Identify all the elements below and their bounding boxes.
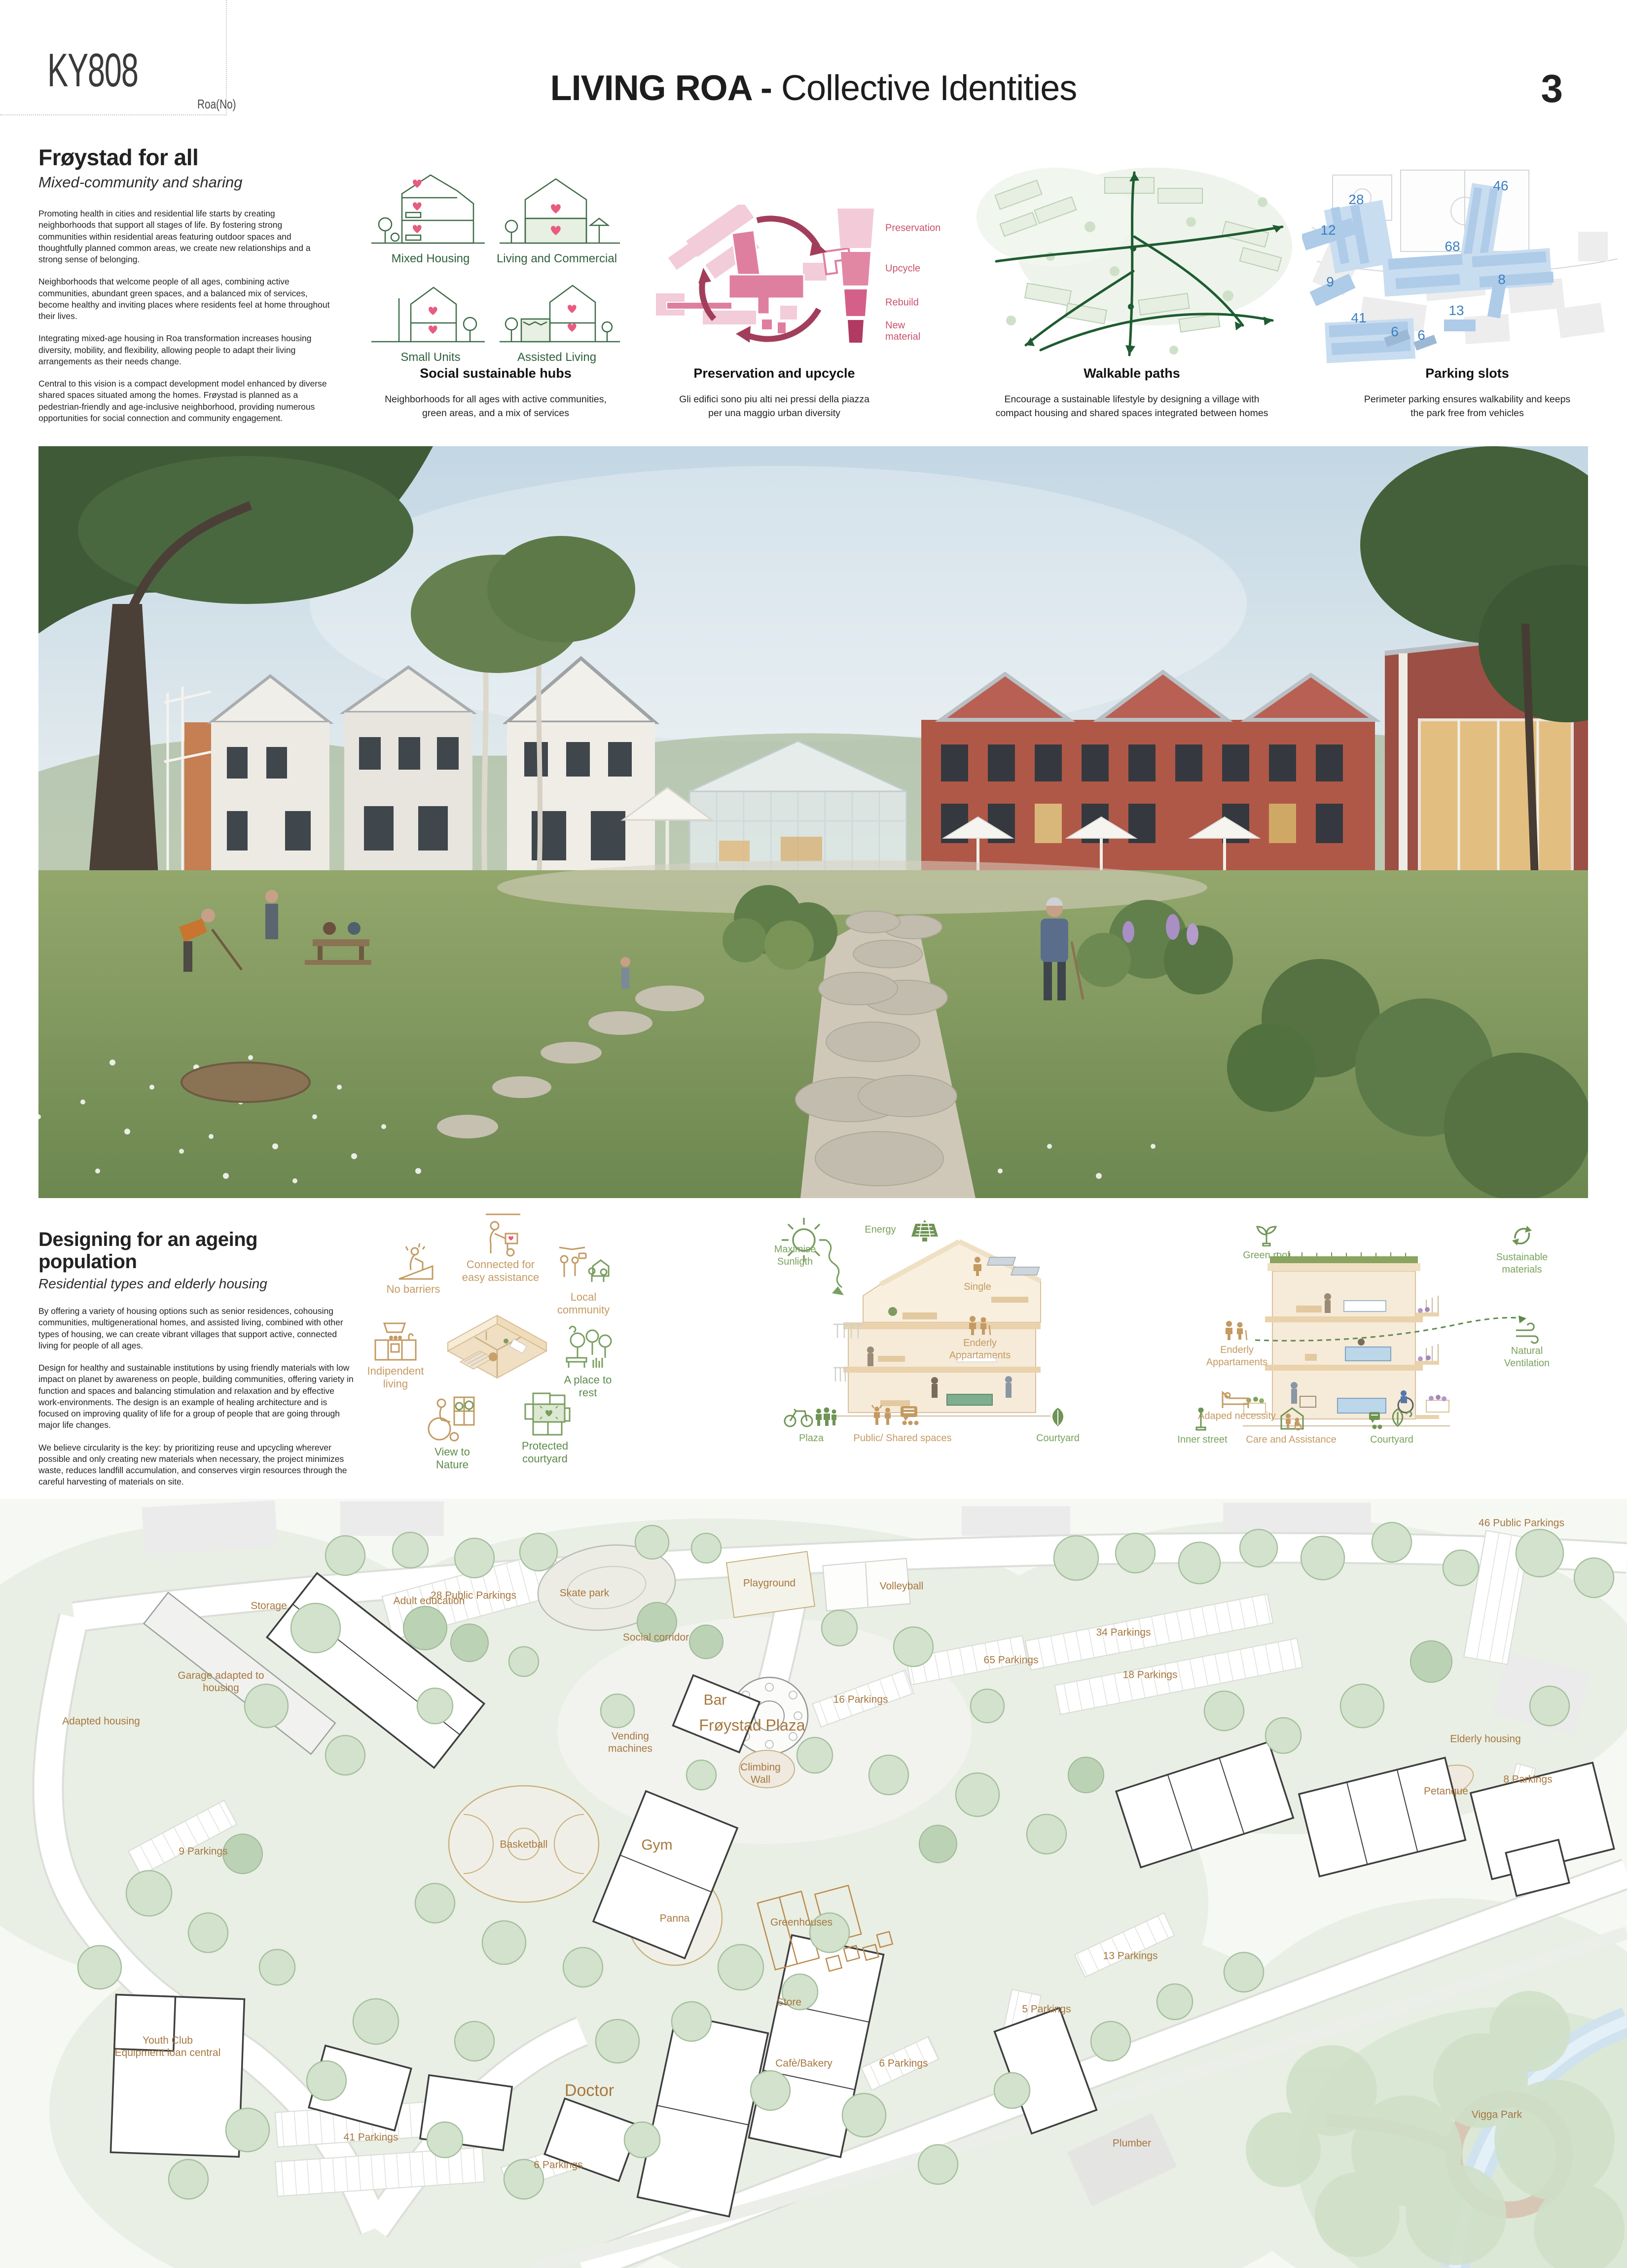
plan-label: Doctor bbox=[565, 2081, 614, 2100]
ageing-section: Designing for an ageing population Resid… bbox=[38, 1229, 354, 1499]
plan-label: 6 Parkings bbox=[879, 2058, 928, 2070]
material-funnel bbox=[837, 209, 874, 343]
intro-subtitle: Mixed-community and sharing bbox=[38, 174, 330, 191]
plan-label: Panna bbox=[660, 1913, 690, 1925]
section-diagram-two: Green roof Sustainable materials Enderly… bbox=[1149, 1198, 1608, 1499]
community-icon bbox=[557, 1246, 612, 1291]
legend-new-material: New material bbox=[885, 320, 932, 343]
housing-type-label: Mixed Housing bbox=[392, 252, 470, 266]
plan-label: Youth Club Equipment loan central bbox=[115, 2035, 221, 2059]
leaf-icon bbox=[1046, 1405, 1070, 1429]
sun-ray-arrow bbox=[821, 1235, 890, 1299]
solar-panel-icon bbox=[907, 1219, 942, 1243]
mixed-housing-icon bbox=[371, 175, 485, 243]
legend-upcycle: Upcycle bbox=[885, 263, 920, 275]
parking-count: 6 bbox=[1391, 324, 1399, 340]
inner-street-label: Inner street bbox=[1177, 1434, 1227, 1446]
walkable-caption: Encourage a sustainable lifestyle by des… bbox=[959, 392, 1304, 421]
quality-label: A place to rest bbox=[564, 1374, 612, 1400]
courtyard-label: Courtyard bbox=[1370, 1434, 1413, 1446]
plan-label: Plumber bbox=[1113, 2138, 1151, 2150]
plan-label: Adapted housing bbox=[62, 1716, 140, 1728]
sunlight-label: Maximise Sunligth bbox=[774, 1243, 816, 1268]
preservation-caption: Gli edifici sono piu alti nei pressi del… bbox=[626, 392, 922, 421]
plan-label: Basketball bbox=[500, 1839, 548, 1851]
shared-spaces-label: Public/ Shared spaces bbox=[853, 1432, 951, 1445]
plan-label: Frøystad Plaza bbox=[699, 1716, 805, 1735]
wheelchair-window-icon bbox=[427, 1394, 476, 1444]
plan-label: Bar bbox=[704, 1691, 727, 1708]
nurse-icon bbox=[480, 1219, 524, 1258]
rest-garden-icon bbox=[564, 1325, 613, 1372]
housing-type-label: Small Units bbox=[400, 351, 460, 364]
hubs-caption: Neighborhoods for all ages with active c… bbox=[348, 392, 644, 421]
plan-label: 5 Parkings bbox=[1022, 2004, 1071, 2016]
parking-caption-title: Parking slots bbox=[1319, 366, 1615, 381]
recycle-icon bbox=[1508, 1222, 1536, 1249]
ventilation-label: Natural Ventilation bbox=[1504, 1345, 1550, 1370]
elderly-apartments-label: Enderly Appartaments bbox=[949, 1337, 1011, 1362]
plan-label: 65 Parkings bbox=[984, 1655, 1039, 1667]
single-person-icon bbox=[971, 1256, 984, 1277]
hubs-caption-title: Social sustainable hubs bbox=[367, 366, 624, 381]
page-title: LIVING ROA - Collective Identities bbox=[0, 68, 1627, 108]
plan-label: 13 Parkings bbox=[1103, 1950, 1158, 1963]
kitchen-icon bbox=[373, 1321, 418, 1363]
parking-caption: Perimeter parking ensures walkability an… bbox=[1304, 392, 1627, 421]
parking-count: 13 bbox=[1448, 303, 1464, 319]
preservation-diagram: Preservation Upcycle Rebuild New materia… bbox=[656, 205, 932, 353]
parking-count: 12 bbox=[1320, 222, 1336, 238]
courtyard-label: Courtyard bbox=[1036, 1432, 1080, 1445]
site-plan: 28 Public Parkings46 Public ParkingsStor… bbox=[0, 1499, 1627, 2268]
plan-label: Cafè/Bakery bbox=[775, 2058, 832, 2070]
child-figure bbox=[620, 957, 630, 989]
courtyard-render bbox=[38, 446, 1588, 1198]
care-icon bbox=[1278, 1405, 1306, 1431]
parking-count: 28 bbox=[1348, 192, 1364, 208]
plan-label: Greenhouses bbox=[770, 1917, 832, 1929]
plan-label: Petanque bbox=[1424, 1786, 1468, 1798]
parking-slots-diagram: 2812941466881366 bbox=[1302, 158, 1627, 370]
elderly-couple-icon bbox=[966, 1315, 993, 1336]
elderly-couple-icon bbox=[1222, 1320, 1250, 1341]
small-units-icon bbox=[371, 287, 485, 342]
intro-section: Frøystad for all Mixed-community and sha… bbox=[38, 144, 330, 435]
orange-wall bbox=[184, 722, 211, 885]
assisted-living-icon bbox=[500, 285, 620, 342]
energy-label: Energy bbox=[865, 1224, 896, 1236]
plan-label: 46 Public Parkings bbox=[1479, 1518, 1564, 1530]
section-diagram-one: Maximise Sunligth Energy Single Enderly … bbox=[764, 1198, 1139, 1494]
legend-preservation: Preservation bbox=[885, 223, 940, 234]
care-label: Care and Assistance bbox=[1246, 1434, 1336, 1446]
apartment-axon bbox=[433, 1277, 561, 1390]
plan-label: Store bbox=[777, 1997, 801, 2009]
quality-label: No barriers bbox=[387, 1283, 440, 1296]
parking-count: 41 bbox=[1351, 310, 1366, 326]
wind-icon bbox=[1514, 1322, 1540, 1344]
quality-label: Local community bbox=[557, 1291, 610, 1317]
plaza-label: Plaza bbox=[799, 1432, 824, 1445]
log bbox=[181, 1063, 310, 1102]
plan-label: Playground bbox=[743, 1578, 795, 1590]
courtyard-plan-icon bbox=[521, 1391, 571, 1438]
ageing-subtitle: Residential types and elderly housing bbox=[38, 1276, 354, 1292]
intro-paragraph: Integrating mixed-age housing in Roa tra… bbox=[38, 333, 330, 367]
parking-count: 9 bbox=[1326, 274, 1334, 290]
site-plan-map bbox=[0, 1499, 1627, 2268]
legend-rebuild: Rebuild bbox=[885, 297, 919, 309]
plan-label: 9 Parkings bbox=[179, 1846, 227, 1858]
adapted-bed-icon bbox=[1221, 1389, 1250, 1409]
plan-label: Adult education bbox=[394, 1595, 465, 1608]
page-number: 3 bbox=[1541, 66, 1563, 111]
plan-label: 41 Parkings bbox=[344, 2132, 398, 2144]
housing-type-label: Living and Commercial bbox=[497, 252, 617, 266]
intro-paragraph: Central to this vision is a compact deve… bbox=[38, 378, 330, 424]
shared-spaces-icons bbox=[868, 1404, 932, 1429]
ageing-paragraph: Design for healthy and sustainable insti… bbox=[38, 1362, 354, 1431]
housing-types-diagram: Mixed Housing Living and Commercial Smal… bbox=[367, 165, 624, 362]
green-roof-label: Green roof bbox=[1243, 1249, 1290, 1262]
intro-paragraph: Promoting health in cities and residenti… bbox=[38, 208, 330, 265]
plan-label: 6 Parkings bbox=[534, 2160, 582, 2172]
ramp-icon bbox=[396, 1242, 435, 1282]
quality-label: Connected for easy assistance bbox=[462, 1258, 540, 1284]
parking-count: 8 bbox=[1498, 272, 1506, 287]
ageing-paragraph: By offering a variety of housing options… bbox=[38, 1306, 354, 1351]
adapted-label: Adaped necessity bbox=[1198, 1410, 1276, 1422]
intro-heading: Frøystad for all bbox=[38, 144, 330, 171]
qualities-diagram: No barriers Connected for easy assistanc… bbox=[367, 1208, 723, 1494]
walkable-caption-title: Walkable paths bbox=[984, 366, 1280, 381]
plan-label: Elderly housing bbox=[1450, 1734, 1521, 1746]
walkable-paths-diagram bbox=[967, 158, 1302, 365]
single-label: Single bbox=[964, 1281, 991, 1293]
ageing-paragraph: We believe circularity is the key: by pr… bbox=[38, 1442, 354, 1488]
page-title-bold: LIVING ROA - bbox=[550, 69, 772, 108]
red-building bbox=[921, 672, 1375, 880]
divider-line bbox=[486, 1212, 520, 1217]
standing-figure bbox=[265, 890, 278, 939]
page-title-regular: Collective Identities bbox=[772, 69, 1077, 108]
preservation-caption-title: Preservation and upcycle bbox=[626, 366, 922, 381]
housing-type-label: Assisted Living bbox=[517, 351, 596, 364]
parking-count: 46 bbox=[1493, 178, 1508, 194]
ageing-heading: Designing for an ageing population bbox=[38, 1229, 354, 1273]
materials-label: Sustainable materials bbox=[1496, 1251, 1548, 1276]
plan-label: 16 Parkings bbox=[833, 1694, 888, 1706]
parking-count: 6 bbox=[1417, 327, 1425, 343]
plan-label: Climbing Wall bbox=[740, 1762, 781, 1786]
intro-paragraph: Neighborhoods that welcome people of all… bbox=[38, 276, 330, 322]
plan-label: 34 Parkings bbox=[1096, 1627, 1151, 1639]
plaza-icons bbox=[783, 1405, 837, 1428]
living-commercial-icon bbox=[500, 179, 620, 243]
competition-board: KY808 Roa(No) LIVING ROA - Collective Id… bbox=[0, 0, 1627, 2268]
plan-label: Vending machines bbox=[608, 1731, 652, 1755]
quality-label: Protected courtyard bbox=[522, 1440, 568, 1466]
parking-count: 68 bbox=[1445, 239, 1460, 254]
plan-label: Social corridor bbox=[623, 1632, 689, 1644]
plan-label: 8 Parkings bbox=[1503, 1774, 1552, 1786]
quality-label: View to Nature bbox=[434, 1446, 470, 1472]
plan-label: Gym bbox=[641, 1836, 672, 1853]
plan-label: Skate park bbox=[560, 1588, 609, 1600]
sprout-icon bbox=[1255, 1224, 1278, 1246]
plan-label: Storage bbox=[251, 1600, 287, 1613]
plan-label: Volleyball bbox=[880, 1581, 924, 1593]
plan-label: Garage adapted to housing bbox=[178, 1670, 264, 1695]
plan-label: 18 Parkings bbox=[1123, 1669, 1178, 1682]
courtyard-icons bbox=[1367, 1405, 1412, 1431]
quality-label: Indipendent living bbox=[367, 1365, 424, 1391]
ventilation-arrow bbox=[1250, 1315, 1546, 1350]
street-lamp-icon bbox=[1193, 1408, 1209, 1431]
plan-label: Vigga Park bbox=[1472, 2109, 1522, 2122]
